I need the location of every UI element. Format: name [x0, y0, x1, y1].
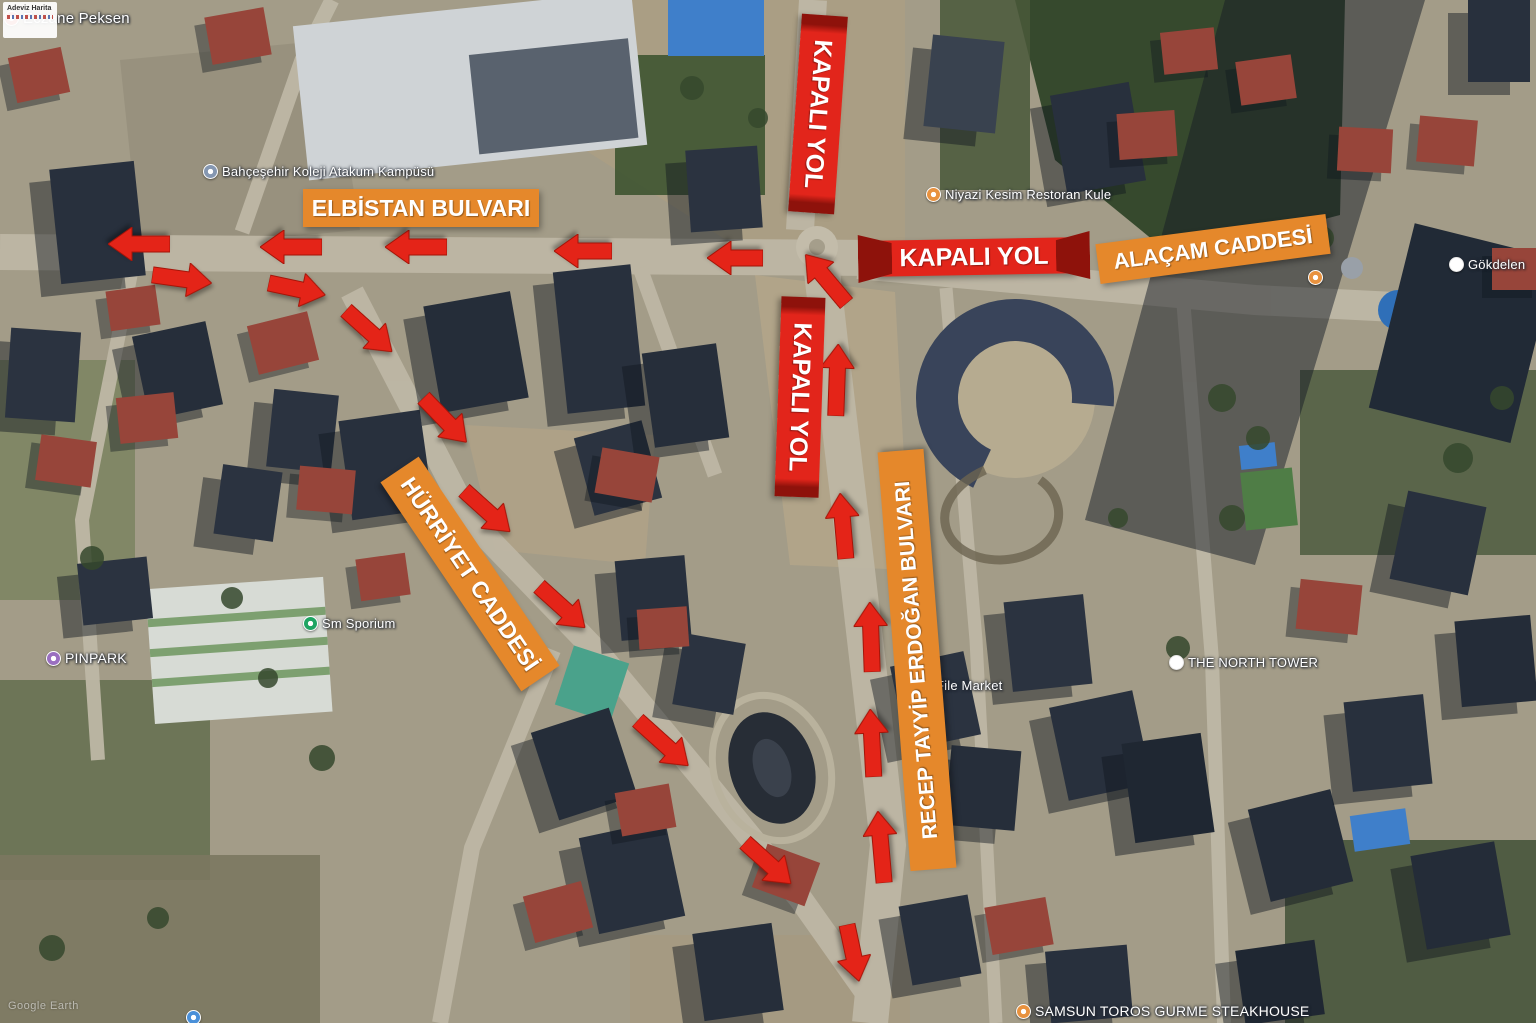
- banner-text: KAPALI YOL: [798, 39, 837, 190]
- street-banner-recep-tayyip-erdogan: RECEP TAYYİP ERDOĞAN BULVARI: [878, 449, 957, 871]
- closure-banner-kapali-yol-top: KAPALI YOL: [788, 14, 848, 215]
- banner-text: ELBİSTAN BULVARI: [312, 195, 531, 222]
- annotated-satellite-map: Eczane PeksenBahçeşehir Koleji Atakum Ka…: [0, 0, 1536, 1023]
- banner-text: RECEP TAYYİP ERDOĞAN BULVARI: [891, 480, 943, 840]
- banners-layer: ELBİSTAN BULVARIALAÇAM CADDESİHÜRRİYET C…: [0, 0, 1536, 1023]
- street-banner-alacam: ALAÇAM CADDESİ: [1095, 214, 1330, 284]
- map-provider-watermark: Adeviz Harita: [3, 2, 57, 38]
- watermark-title: Adeviz Harita: [7, 5, 53, 13]
- banner-text: KAPALI YOL: [783, 322, 817, 472]
- banner-text: ALAÇAM CADDESİ: [1112, 223, 1314, 275]
- street-banner-hurriyet: HÜRRİYET CADDESİ: [380, 457, 559, 692]
- google-earth-attribution: Google Earth: [8, 1000, 79, 1012]
- banner-text: HÜRRİYET CADDESİ: [395, 472, 545, 676]
- closure-banner-kapali-yol-mid: KAPALI YOL: [775, 296, 826, 497]
- street-banner-elbistan: ELBİSTAN BULVARI: [303, 189, 539, 227]
- banner-text: KAPALI YOL: [899, 241, 1049, 273]
- watermark-subtext: [7, 15, 53, 19]
- closure-banner-kapali-yol-horizontal: KAPALI YOL: [874, 237, 1075, 276]
